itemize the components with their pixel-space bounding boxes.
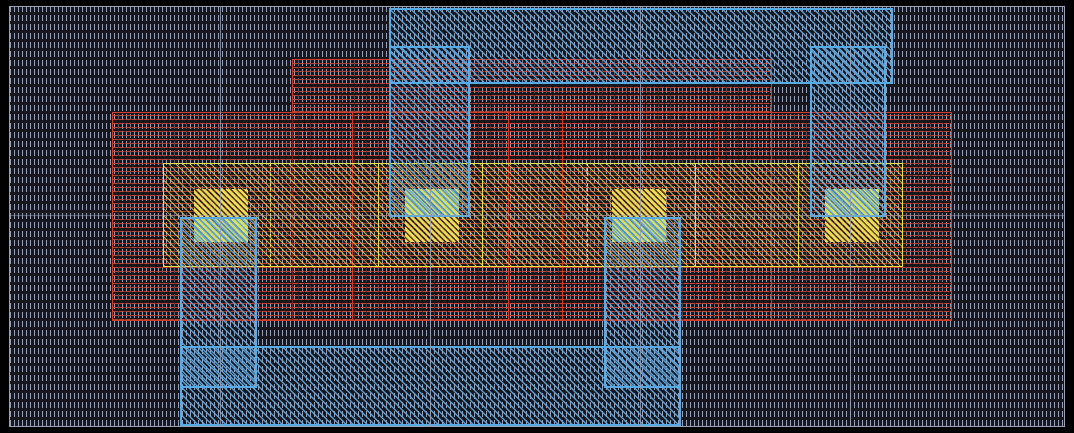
cell-guide-horizontal bbox=[9, 215, 1065, 216]
metal-tab-contact-4[interactable] bbox=[810, 46, 886, 217]
contact-1-upper-half[interactable] bbox=[194, 189, 248, 217]
metal-tab-contact-1[interactable] bbox=[180, 217, 257, 388]
cell-guide-vertical-1 bbox=[220, 7, 221, 427]
contact-2-lower-half[interactable] bbox=[405, 217, 459, 242]
metal-tab-contact-3[interactable] bbox=[604, 217, 681, 388]
cell-guide-vertical-4 bbox=[850, 7, 851, 427]
cell-guide-vertical-2 bbox=[430, 7, 431, 427]
cell-guide-vertical-3 bbox=[640, 7, 641, 427]
layout-viewer-canvas[interactable] bbox=[0, 0, 1074, 433]
contact-4-lower-half[interactable] bbox=[825, 217, 879, 242]
contact-3-upper-half[interactable] bbox=[612, 189, 666, 217]
